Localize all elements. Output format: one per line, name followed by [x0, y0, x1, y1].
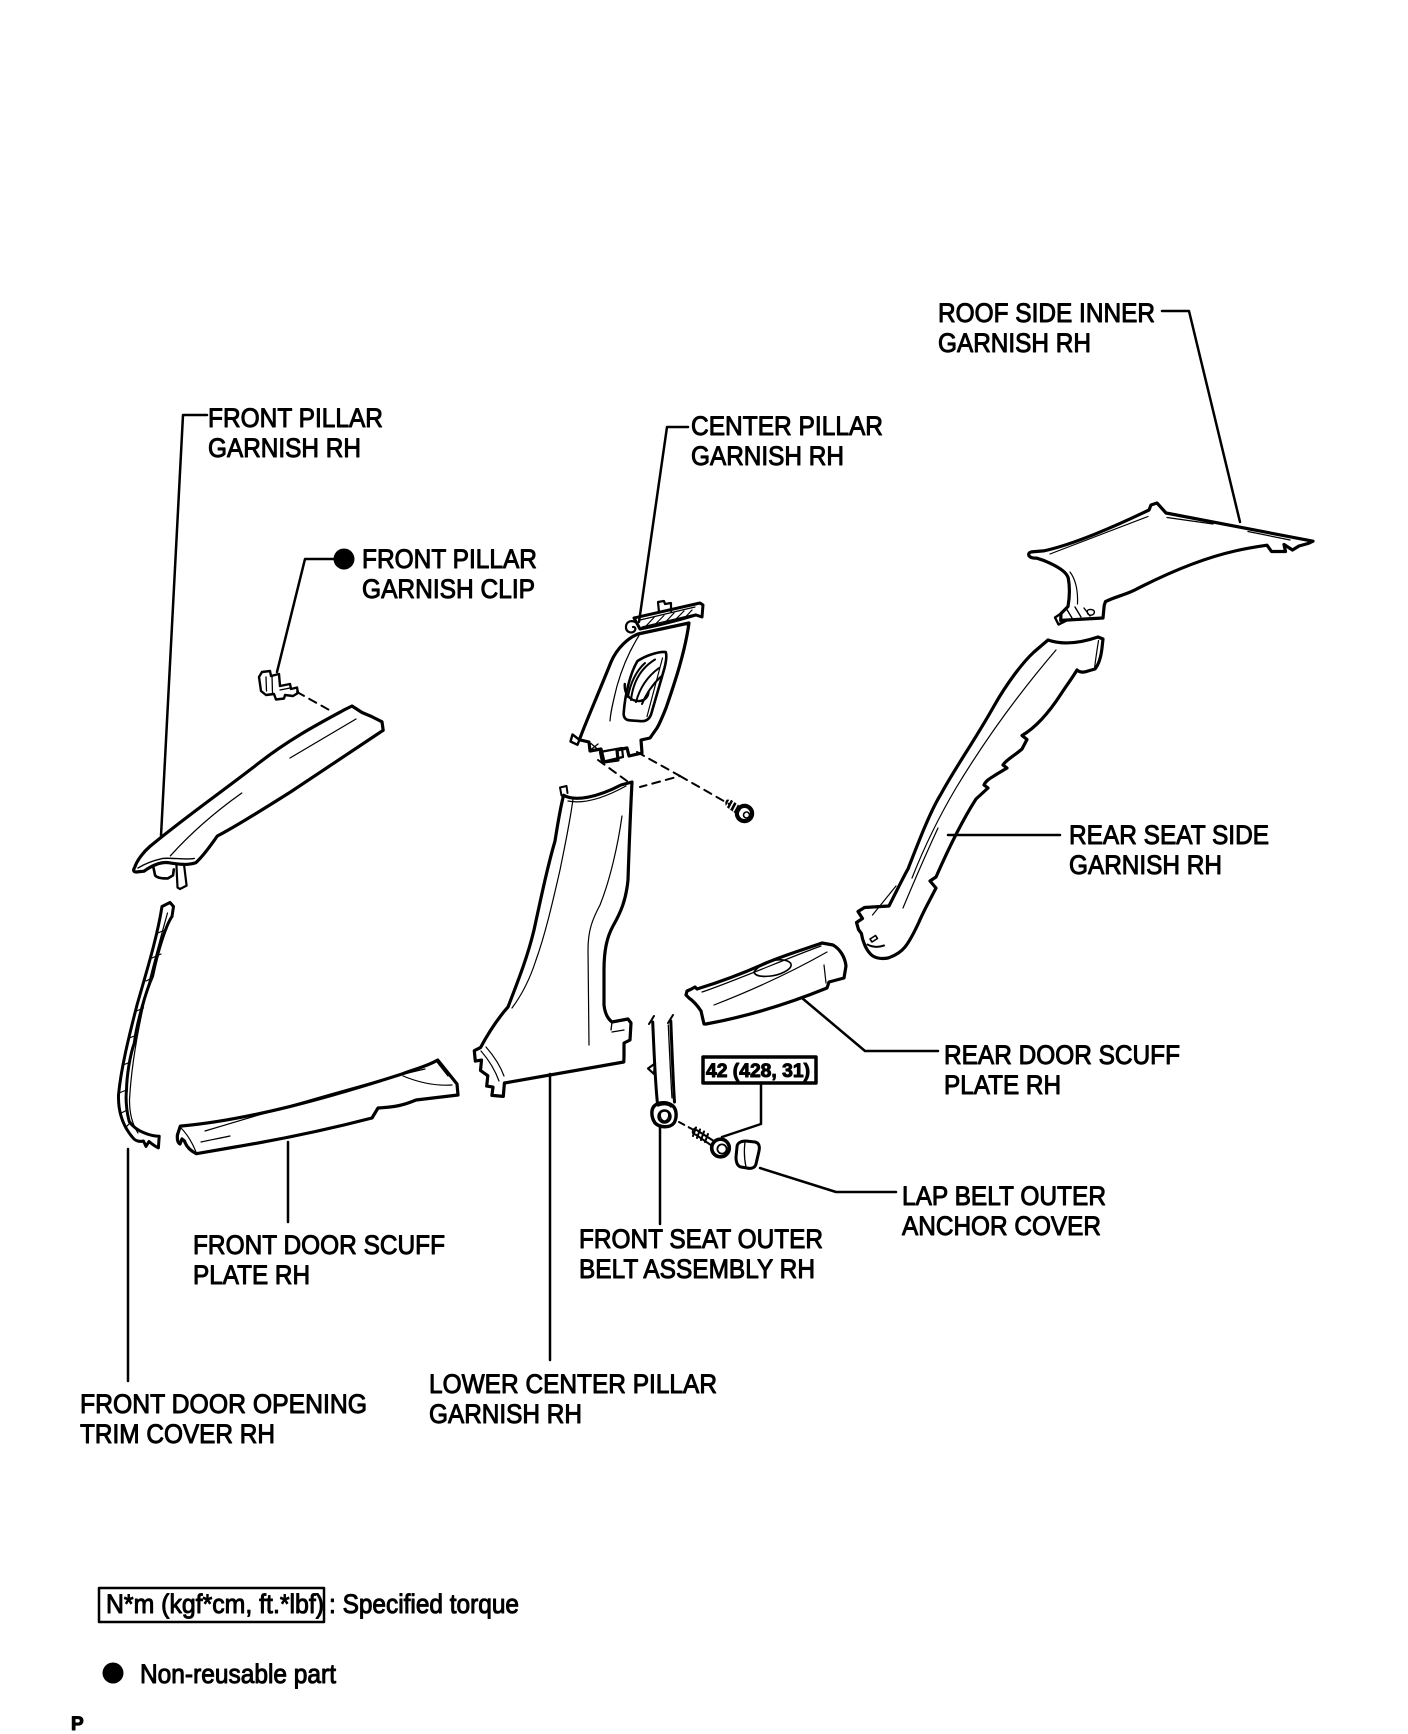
svg-text:ROOF SIDE INNER: ROOF SIDE INNER [938, 298, 1155, 328]
svg-text:FRONT PILLAR: FRONT PILLAR [208, 403, 383, 433]
svg-text:GARNISH RH: GARNISH RH [938, 328, 1091, 358]
svg-text:FRONT DOOR OPENING: FRONT DOOR OPENING [80, 1389, 367, 1419]
svg-text:LAP BELT OUTER: LAP BELT OUTER [902, 1181, 1106, 1211]
svg-text:FRONT PILLAR: FRONT PILLAR [362, 544, 537, 574]
svg-text:GARNISH RH: GARNISH RH [429, 1399, 582, 1429]
svg-text:PLATE RH: PLATE RH [193, 1260, 310, 1290]
svg-text:ANCHOR COVER: ANCHOR COVER [902, 1211, 1101, 1241]
svg-text:FRONT SEAT OUTER: FRONT SEAT OUTER [579, 1224, 823, 1254]
svg-text:LOWER CENTER PILLAR: LOWER CENTER PILLAR [429, 1369, 717, 1399]
svg-text:REAR SEAT SIDE: REAR SEAT SIDE [1069, 820, 1269, 850]
svg-text:CENTER PILLAR: CENTER PILLAR [691, 411, 883, 441]
svg-text:BELT ASSEMBLY RH: BELT ASSEMBLY RH [579, 1254, 815, 1284]
svg-text:Non-reusable part: Non-reusable part [140, 1659, 336, 1689]
svg-text:N*m (kgf*cm, ft.*lbf): N*m (kgf*cm, ft.*lbf) [106, 1589, 324, 1619]
svg-text:GARNISH RH: GARNISH RH [691, 441, 844, 471]
svg-text:TRIM COVER RH: TRIM COVER RH [80, 1419, 275, 1449]
svg-text:GARNISH RH: GARNISH RH [208, 433, 361, 463]
svg-text:P: P [71, 1714, 84, 1734]
svg-text:REAR DOOR SCUFF: REAR DOOR SCUFF [944, 1040, 1180, 1070]
svg-text:42 (428, 31): 42 (428, 31) [706, 1061, 810, 1082]
svg-text:FRONT DOOR SCUFF: FRONT DOOR SCUFF [193, 1230, 445, 1260]
svg-text:GARNISH RH: GARNISH RH [1069, 850, 1222, 880]
svg-text:GARNISH CLIP: GARNISH CLIP [362, 574, 535, 604]
svg-text:PLATE RH: PLATE RH [944, 1070, 1061, 1100]
svg-text:: Specified torque: : Specified torque [329, 1589, 519, 1619]
